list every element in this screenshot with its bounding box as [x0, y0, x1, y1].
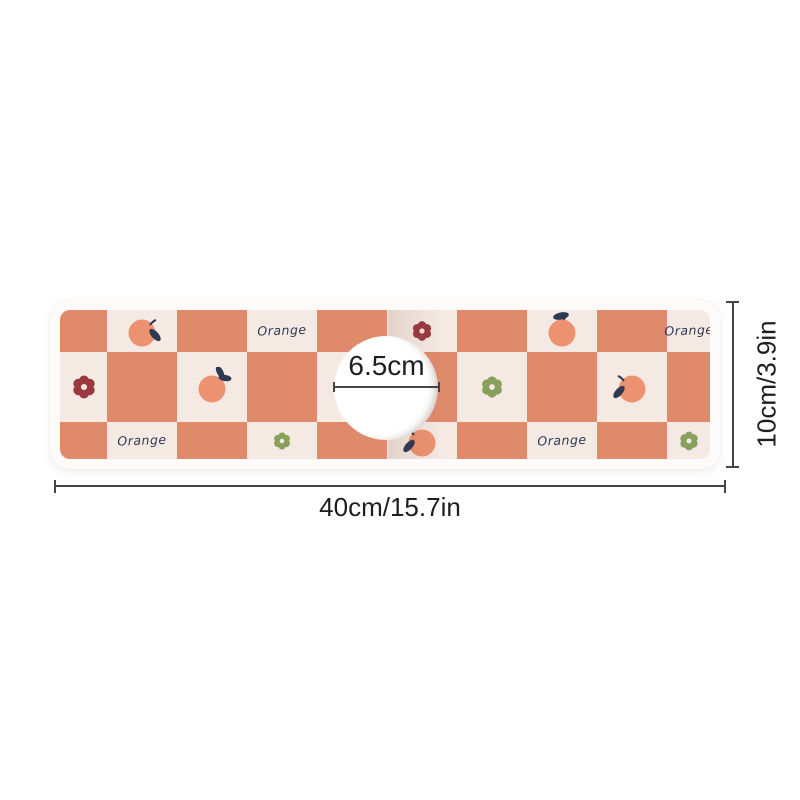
checker-cell — [60, 310, 107, 352]
orange-fruit-icon — [122, 311, 162, 351]
hole-dimension-cap-right — [438, 382, 440, 392]
green-flower-icon — [678, 430, 700, 452]
width-dimension-line — [55, 485, 725, 487]
orange-label: Orange — [117, 433, 167, 447]
checker-cell — [597, 422, 667, 459]
green-flower-icon — [480, 375, 505, 400]
orange-label: Orange — [257, 324, 307, 338]
checker-cell — [457, 310, 527, 352]
green-flower-icon — [272, 431, 292, 451]
orange-fruit-icon — [192, 367, 232, 407]
checkerboard-pattern: OrangeOrangeOrangeOrange — [60, 310, 710, 459]
product-dimension-image: OrangeOrangeOrangeOrange 6.5cm 40cm/15.7… — [0, 0, 800, 800]
hole-dimension-cap-left — [333, 382, 335, 392]
orange-fruit-icon — [612, 367, 652, 407]
checker-cell — [667, 352, 710, 422]
width-dimension-label: 40cm/15.7in — [55, 492, 725, 523]
checker-cell — [177, 422, 247, 459]
checker-cell — [107, 352, 177, 422]
height-dimension-line — [732, 301, 734, 468]
checker-cell — [177, 310, 247, 352]
height-dimension-cap-top — [726, 301, 739, 303]
orange-label: Orange — [664, 324, 710, 338]
red-flower-icon — [70, 374, 97, 401]
faucet-mat: OrangeOrangeOrangeOrange — [50, 300, 720, 469]
checker-cell — [527, 352, 597, 422]
checker-cell — [597, 310, 667, 352]
orange-fruit-icon — [542, 311, 582, 351]
checker-cell — [457, 422, 527, 459]
checker-cell — [60, 422, 107, 459]
height-dimension-cap-bottom — [726, 466, 739, 468]
hole-dimension-line — [333, 386, 440, 388]
hole-dimension-label: 6.5cm — [333, 350, 440, 382]
orange-label: Orange — [537, 433, 587, 447]
checker-cell — [247, 352, 317, 422]
height-dimension-label: 10cm/3.9in — [752, 320, 783, 447]
